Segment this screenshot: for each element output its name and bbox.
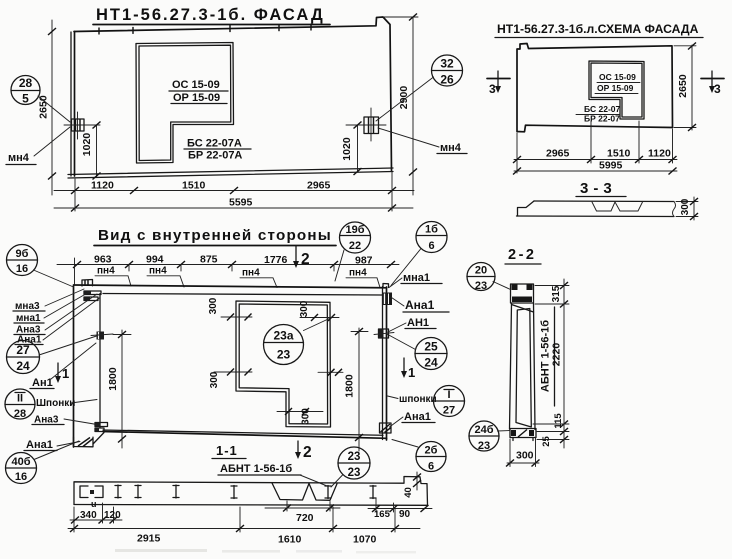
svg-text:2-2: 2-2 [508,247,536,263]
svg-text:шпонки: шпонки [399,394,437,405]
svg-text:120: 120 [104,510,121,521]
svg-text:2900: 2900 [398,86,410,110]
svg-text:20: 20 [475,265,487,277]
svg-text:27: 27 [443,405,455,417]
svg-text:23: 23 [478,440,490,452]
svg-text:НТ1-56.27.3-1б.л.СХЕМА ФАСАДА: НТ1-56.27.3-1б.л.СХЕМА ФАСАДА [497,22,699,36]
svg-text:ОС 15-09: ОС 15-09 [599,72,636,82]
svg-text:1800: 1800 [344,374,356,398]
svg-text:БС 22-07: БС 22-07 [584,104,621,114]
svg-text:I: I [447,389,450,401]
svg-text:2б: 2б [425,445,438,457]
svg-text:1510: 1510 [607,148,631,160]
svg-text:963: 963 [94,254,112,266]
svg-text:пн4: пн4 [97,266,115,277]
svg-text:ОР 15-09: ОР 15-09 [173,92,220,104]
svg-text:24: 24 [424,356,438,370]
svg-text:16: 16 [15,471,27,483]
svg-text:БР 22-07А: БР 22-07А [188,150,242,162]
svg-text:1800: 1800 [107,367,119,391]
svg-text:2650: 2650 [38,95,50,119]
svg-text:5995: 5995 [599,160,623,172]
svg-text:6: 6 [428,240,434,252]
svg-text:Ана1: Ана1 [404,411,431,423]
svg-text:u: u [91,499,97,509]
svg-text:мн4: мн4 [8,152,30,164]
svg-text:300: 300 [516,450,534,462]
svg-text:994: 994 [146,254,164,266]
svg-text:24: 24 [16,359,30,373]
svg-text:мн4: мн4 [440,142,462,154]
svg-text:24б: 24б [474,424,493,436]
svg-text:26: 26 [440,73,454,87]
svg-text:2965: 2965 [307,180,331,192]
svg-text:25: 25 [424,340,438,354]
svg-text:23: 23 [348,451,361,463]
svg-text:2220: 2220 [551,343,563,367]
svg-text:Шпонки: Шпонки [36,398,75,409]
svg-text:23а: 23а [273,329,293,343]
svg-text:БС 22-07А: БС 22-07А [187,138,242,150]
svg-text:1510: 1510 [182,180,206,192]
svg-text:1070: 1070 [353,534,377,546]
svg-text:28: 28 [14,408,26,420]
svg-text:27: 27 [16,343,30,357]
svg-text:2: 2 [303,444,312,461]
svg-text:875: 875 [200,254,218,266]
svg-text:БР 22-07: БР 22-07 [584,114,620,124]
svg-text:1610: 1610 [278,534,302,546]
svg-text:40б: 40б [11,456,30,468]
svg-text:16: 16 [16,263,28,275]
svg-text:НТ1-56.27.3-1б. ФАСАД: НТ1-56.27.3-1б. ФАСАД [96,6,325,24]
svg-text:3: 3 [714,82,721,96]
svg-text:9б: 9б [16,248,29,260]
svg-text:2650: 2650 [677,74,689,98]
svg-text:19б: 19б [345,224,364,236]
svg-text:40: 40 [403,487,414,498]
svg-text:Ана1: Ана1 [405,298,435,312]
svg-text:пн4: пн4 [349,268,367,279]
svg-text:Ана1: Ана1 [26,439,53,451]
svg-text:3-3: 3-3 [580,180,617,197]
svg-text:6: 6 [428,461,434,473]
svg-text:мна1: мна1 [403,272,430,284]
svg-text:АБНТ 1-56-1б: АБНТ 1-56-1б [220,463,292,475]
svg-text:720: 720 [296,512,314,524]
svg-text:315: 315 [551,285,562,302]
svg-text:90: 90 [399,509,411,520]
svg-text:Вид с внутренней стороны: Вид с внутренней стороны [98,227,332,244]
svg-text:23: 23 [348,467,361,479]
svg-text:32: 32 [440,57,454,71]
svg-text:Ан1: Ан1 [32,377,53,389]
svg-text:5: 5 [22,92,29,106]
svg-text:пн4: пн4 [242,268,260,279]
svg-text:1: 1 [408,365,415,380]
svg-text:1020: 1020 [341,137,353,161]
svg-text:22: 22 [349,240,361,252]
svg-text:ОС 15-09: ОС 15-09 [172,79,220,91]
svg-text:300: 300 [301,408,312,425]
svg-text:5595: 5595 [229,197,253,209]
svg-text:1-1: 1-1 [216,443,238,458]
svg-text:1020: 1020 [81,133,93,157]
svg-text:3: 3 [489,82,496,96]
svg-text:340: 340 [80,510,97,521]
svg-text:пн4: пн4 [149,266,167,277]
svg-text:ОР 15-09: ОР 15-09 [597,83,634,93]
svg-text:165: 165 [374,509,391,520]
svg-text:23: 23 [277,348,291,362]
svg-text:25: 25 [541,436,552,447]
svg-text:115: 115 [553,413,564,429]
svg-text:АН1: АН1 [407,317,429,329]
svg-text:1б: 1б [425,224,438,236]
svg-text:1120: 1120 [91,180,114,192]
svg-text:2965: 2965 [546,148,570,160]
svg-text:28: 28 [19,76,33,90]
svg-text:1120: 1120 [648,148,671,160]
svg-text:300: 300 [680,198,691,215]
svg-text:300: 300 [209,371,220,388]
svg-text:1: 1 [62,366,69,381]
svg-text:300: 300 [299,300,310,317]
svg-text:II: II [17,393,23,405]
svg-text:2915: 2915 [137,533,161,545]
svg-text:23: 23 [475,280,487,292]
svg-text:1776: 1776 [264,254,288,266]
svg-text:2: 2 [301,251,310,268]
svg-text:987: 987 [355,255,373,267]
svg-text:300: 300 [208,297,219,314]
